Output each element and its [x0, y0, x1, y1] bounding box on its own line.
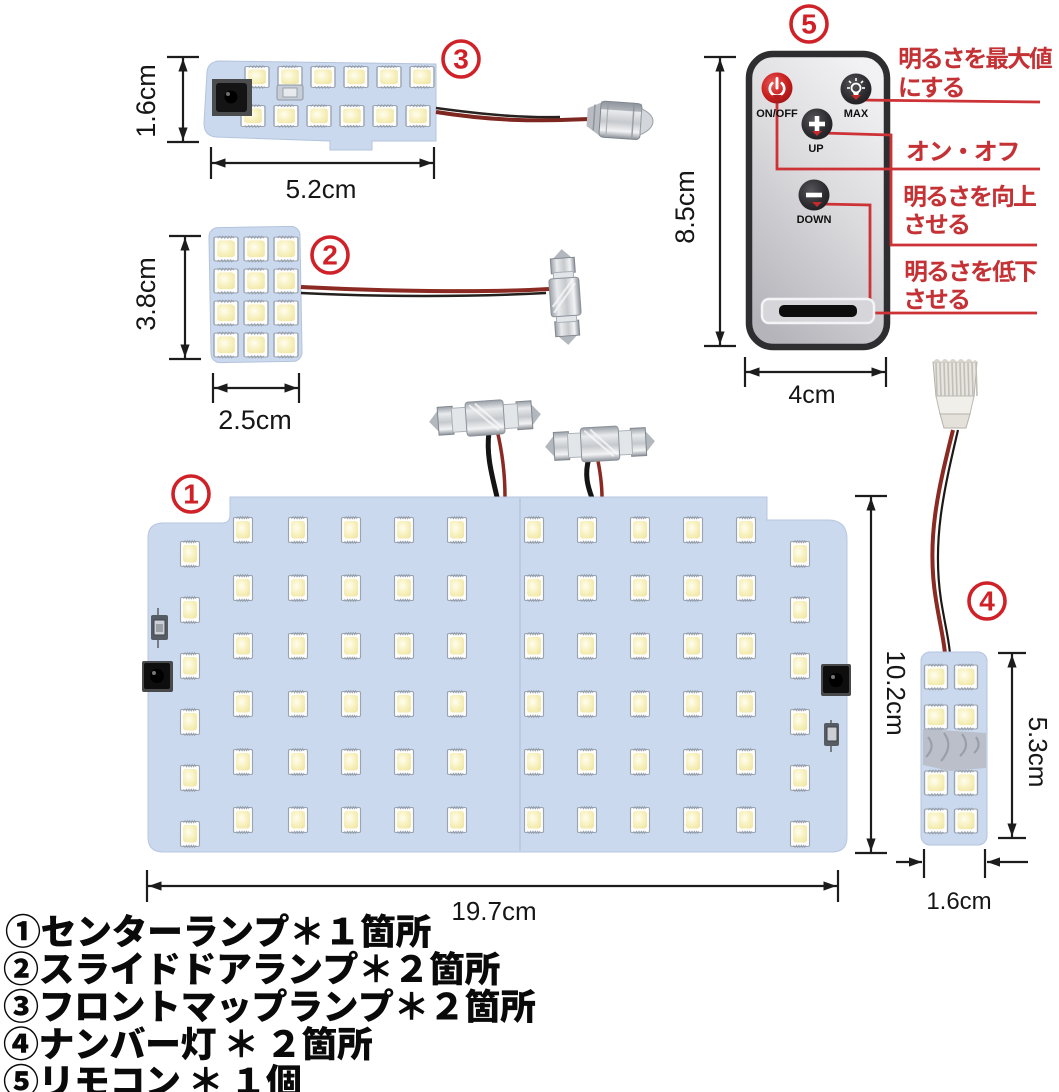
svg-text:1: 1 [183, 478, 199, 509]
svg-text:1.6cm: 1.6cm [926, 888, 991, 915]
svg-text:19.7cm: 19.7cm [451, 896, 536, 926]
svg-text:4: 4 [979, 585, 995, 616]
svg-text:2: 2 [322, 239, 338, 270]
svg-text:8.5cm: 8.5cm [670, 170, 700, 244]
svg-text:2.5cm: 2.5cm [218, 405, 292, 435]
svg-text:UP: UP [808, 143, 823, 155]
svg-text:MAX: MAX [844, 108, 869, 120]
svg-text:1.6cm: 1.6cm [131, 64, 161, 138]
svg-text:10.2cm: 10.2cm [881, 650, 911, 735]
svg-text:3: 3 [453, 43, 469, 74]
svg-text:5.3cm: 5.3cm [1023, 717, 1053, 788]
svg-text:4cm: 4cm [788, 381, 835, 409]
svg-text:ON/OFF: ON/OFF [756, 108, 798, 120]
svg-text:5.2cm: 5.2cm [286, 174, 357, 204]
svg-text:5: 5 [801, 8, 817, 39]
svg-text:DOWN: DOWN [797, 214, 832, 226]
svg-text:3.8cm: 3.8cm [131, 257, 161, 331]
